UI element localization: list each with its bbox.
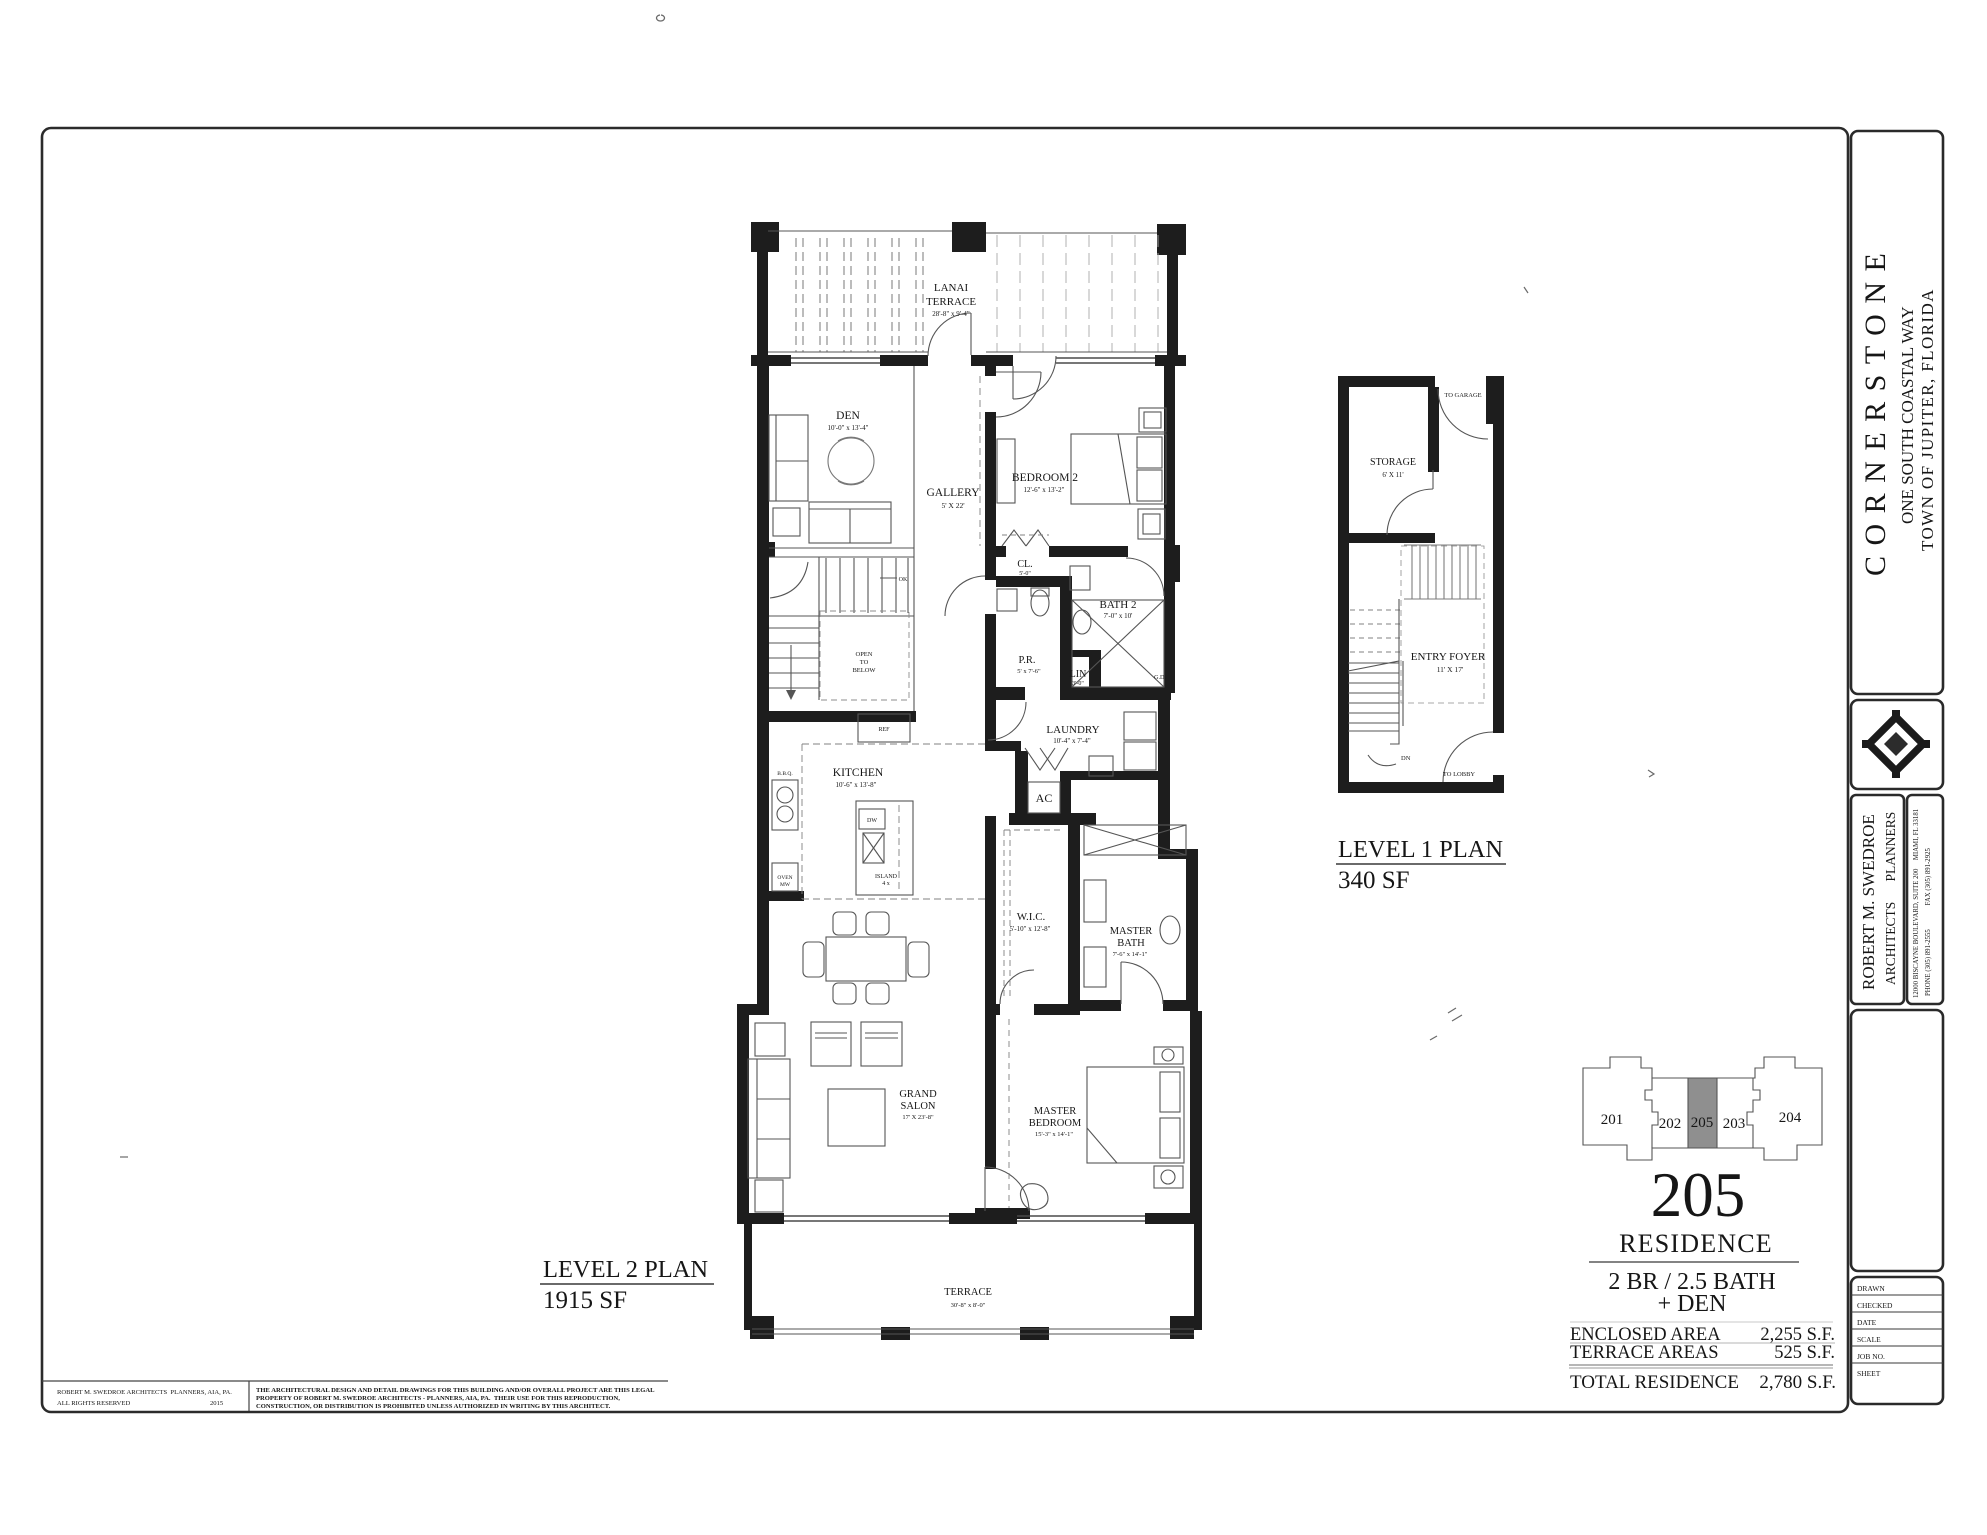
svg-text:ENTRY FOYER: ENTRY FOYER <box>1411 651 1486 663</box>
svg-text:ALL RIGHTS RESERVED: ALL RIGHTS RESERVED <box>57 1400 130 1407</box>
svg-text:AC: AC <box>1036 791 1053 805</box>
svg-text:LEVEL 1 PLAN: LEVEL 1 PLAN <box>1338 836 1503 863</box>
svg-text:3'-0": 3'-0" <box>1072 681 1084 687</box>
svg-text:DW: DW <box>867 818 877 824</box>
svg-text:TERRACE AREAS: TERRACE AREAS <box>1570 1343 1719 1363</box>
svg-text:340 SF: 340 SF <box>1338 867 1410 894</box>
svg-text:BELOW: BELOW <box>852 667 876 674</box>
svg-text:TERRACE: TERRACE <box>926 296 976 308</box>
svg-text:CL.: CL. <box>1017 559 1032 570</box>
svg-text:ISLAND: ISLAND <box>875 874 898 880</box>
svg-text:ROBERT M. SWEDROE ARCHITECTS: ROBERT M. SWEDROE ARCHITECTS PLANNERS, A… <box>57 1389 232 1396</box>
svg-text:DN: DN <box>1401 755 1411 762</box>
svg-text:THE ARCHITECTURAL DESIGN AND D: THE ARCHITECTURAL DESIGN AND DETAIL DRAW… <box>256 1387 655 1394</box>
svg-text:CORNERSTONE: CORNERSTONE <box>1859 243 1892 576</box>
svg-text:LEVEL 2 PLAN: LEVEL 2 PLAN <box>543 1256 708 1283</box>
svg-text:BEDROOM 2: BEDROOM 2 <box>1012 472 1078 484</box>
svg-text:205: 205 <box>1651 1160 1746 1230</box>
svg-text:B.B.Q.: B.B.Q. <box>777 771 793 777</box>
svg-text:PHONE (305) 891-2555: PHONE (305) 891-2555 FAX (305) 891-2925 <box>1925 848 1932 996</box>
svg-text:GRAND: GRAND <box>899 1089 937 1100</box>
svg-text:BEDROOM: BEDROOM <box>1029 1118 1082 1129</box>
svg-text:30'-8" x 8'-0": 30'-8" x 8'-0" <box>951 1302 986 1309</box>
svg-text:5' x 7'-6": 5' x 7'-6" <box>1017 668 1041 675</box>
svg-text:TO: TO <box>860 659 869 666</box>
svg-text:CHECKED: CHECKED <box>1857 1301 1893 1310</box>
svg-text:DATE: DATE <box>1857 1318 1877 1327</box>
svg-text:525 S.F.: 525 S.F. <box>1774 1343 1835 1363</box>
svg-text:205: 205 <box>1691 1115 1714 1131</box>
svg-text:5' X 22': 5' X 22' <box>941 501 965 510</box>
svg-text:OPEN: OPEN <box>856 651 873 658</box>
svg-text:10'-4" x 7'-4": 10'-4" x 7'-4" <box>1053 737 1091 745</box>
svg-text:LANAI: LANAI <box>934 282 969 294</box>
svg-text:OVEN: OVEN <box>777 875 792 881</box>
svg-text:TO LOBBY: TO LOBBY <box>1443 771 1476 778</box>
svg-text:2015: 2015 <box>210 1400 224 1407</box>
svg-text:LAUNDRY: LAUNDRY <box>1046 724 1099 736</box>
svg-text:JOB NO.: JOB NO. <box>1857 1352 1885 1361</box>
svg-text:TO GARAGE: TO GARAGE <box>1444 392 1481 399</box>
svg-text:BATH: BATH <box>1117 938 1145 949</box>
svg-text:202: 202 <box>1659 1116 1682 1132</box>
svg-text:12000 BISCAYNE BOULEVARD, SUIT: 12000 BISCAYNE BOULEVARD, SUITE 200 MIAM… <box>1913 809 1920 998</box>
svg-text:5'-0": 5'-0" <box>1019 571 1031 577</box>
svg-text:ONE SOUTH COASTAL WAY: ONE SOUTH COASTAL WAY <box>1898 306 1917 524</box>
svg-text:6' X 11': 6' X 11' <box>1382 471 1403 479</box>
svg-text:5'-10" x 12'-8": 5'-10" x 12'-8" <box>1010 925 1051 933</box>
svg-text:RESIDENCE: RESIDENCE <box>1619 1229 1773 1258</box>
svg-text:MW: MW <box>780 882 791 888</box>
svg-text:SCALE: SCALE <box>1857 1335 1881 1344</box>
svg-text:CONSTRUCTION, OR DISTRIBUTION: CONSTRUCTION, OR DISTRIBUTION IS PROHIBI… <box>256 1403 611 1410</box>
svg-text:28'-8" x 9'-4": 28'-8" x 9'-4" <box>932 310 970 318</box>
svg-text:203: 203 <box>1723 1116 1746 1132</box>
svg-text:LIN: LIN <box>1070 669 1087 680</box>
svg-text:STORAGE: STORAGE <box>1370 457 1416 468</box>
svg-text:2,780 S.F.: 2,780 S.F. <box>1759 1372 1836 1393</box>
svg-text:4 x: 4 x <box>882 881 890 887</box>
svg-text:11' X 17': 11' X 17' <box>1437 665 1464 674</box>
svg-text:PROPERTY OF ROBERT M. SWEDROE: PROPERTY OF ROBERT M. SWEDROE ARCHITECTS… <box>256 1395 620 1402</box>
svg-text:1915 SF: 1915 SF <box>543 1287 627 1314</box>
svg-text:DRAWN: DRAWN <box>1857 1284 1885 1293</box>
svg-text:10'-6" x 13'-8": 10'-6" x 13'-8" <box>836 781 877 789</box>
svg-text:15'-3" x 14'-1": 15'-3" x 14'-1" <box>1035 1131 1073 1138</box>
svg-text:TOWN OF JUPITER, FLORIDA: TOWN OF JUPITER, FLORIDA <box>1918 288 1937 551</box>
svg-text:+ DEN: + DEN <box>1658 1291 1727 1317</box>
svg-text:KITCHEN: KITCHEN <box>833 767 884 779</box>
svg-text:BATH 2: BATH 2 <box>1100 599 1137 611</box>
svg-text:W.I.C.: W.I.C. <box>1017 911 1046 923</box>
svg-text:OK: OK <box>899 577 908 583</box>
svg-text:TERRACE: TERRACE <box>944 1287 992 1298</box>
svg-text:SALON: SALON <box>900 1101 935 1112</box>
svg-text:ENCLOSED AREA: ENCLOSED AREA <box>1570 1325 1721 1345</box>
svg-text:201: 201 <box>1601 1112 1624 1128</box>
svg-text:ROBERT M. SWEDROE: ROBERT M. SWEDROE <box>1859 814 1878 990</box>
svg-text:G.D.: G.D. <box>1154 675 1166 681</box>
svg-text:REF: REF <box>878 727 890 733</box>
svg-text:17' X 23'-8": 17' X 23'-8" <box>902 1114 934 1121</box>
svg-text:204: 204 <box>1779 1110 1802 1126</box>
svg-text:P.R.: P.R. <box>1019 655 1036 666</box>
svg-text:MASTER: MASTER <box>1110 926 1153 937</box>
svg-text:TOTAL RESIDENCE: TOTAL RESIDENCE <box>1570 1372 1739 1393</box>
svg-text:7'-6" x 14'-1": 7'-6" x 14'-1" <box>1113 951 1148 958</box>
svg-text:12'-6" x 13'-2": 12'-6" x 13'-2" <box>1024 486 1065 494</box>
svg-text:SHEET: SHEET <box>1857 1369 1881 1378</box>
svg-text:GALLERY: GALLERY <box>926 487 980 499</box>
svg-text:MASTER: MASTER <box>1034 1106 1077 1117</box>
svg-text:10'-0" x 13'-4": 10'-0" x 13'-4" <box>828 424 869 432</box>
svg-text:DEN: DEN <box>836 410 860 422</box>
svg-text:ARCHITECTS PLANNERS: ARCHITECTS PLANNERS <box>1883 812 1898 985</box>
svg-text:2,255 S.F.: 2,255 S.F. <box>1760 1325 1835 1345</box>
svg-text:7'-0" x 10': 7'-0" x 10' <box>1104 612 1133 620</box>
